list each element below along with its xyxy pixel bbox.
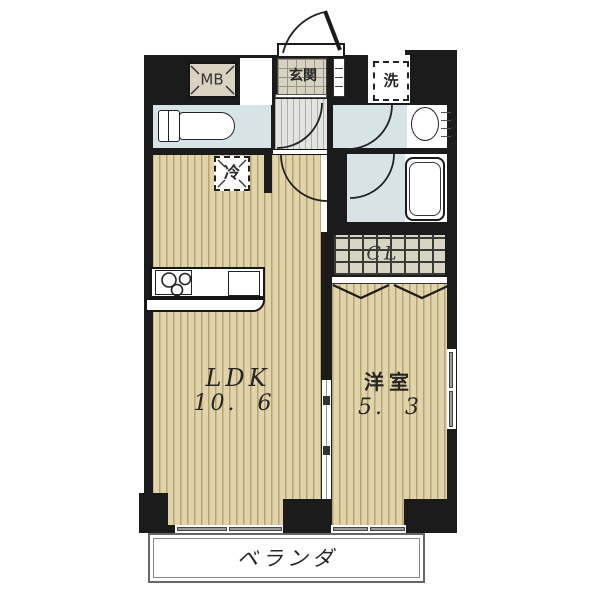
symbols-overlay [0,0,600,600]
ldk-label: LDK [205,366,270,390]
closet-label: CL [366,245,399,264]
washroom-door-arc [348,105,392,149]
entry-door-arc [283,12,325,53]
veranda-label: ベランダ [237,549,337,570]
entrance-label: 玄関 [289,69,317,83]
closet-bifold-door [333,285,389,298]
floor-plan: LDK 10. 6 洋室 5. 3 CL ベランダ 玄関 洗 冷 MB [0,0,600,600]
toilet-door-arc [277,103,322,148]
hall-ldk-door-arc [281,155,327,201]
closet-bifold-door [394,285,450,298]
laundry-label: 洗 [383,74,398,89]
entry-door-leaf [325,11,340,50]
bedroom-label: 洋室 [364,372,414,392]
meter-box-label: MB [200,73,223,88]
bathroom-door-arc [350,154,394,198]
ldk-size-label: 10. 6 [194,393,275,415]
refrigerator-label: 冷 [224,165,240,181]
stove-burners [162,273,191,296]
bedroom-size-label: 5. 3 [358,397,422,419]
